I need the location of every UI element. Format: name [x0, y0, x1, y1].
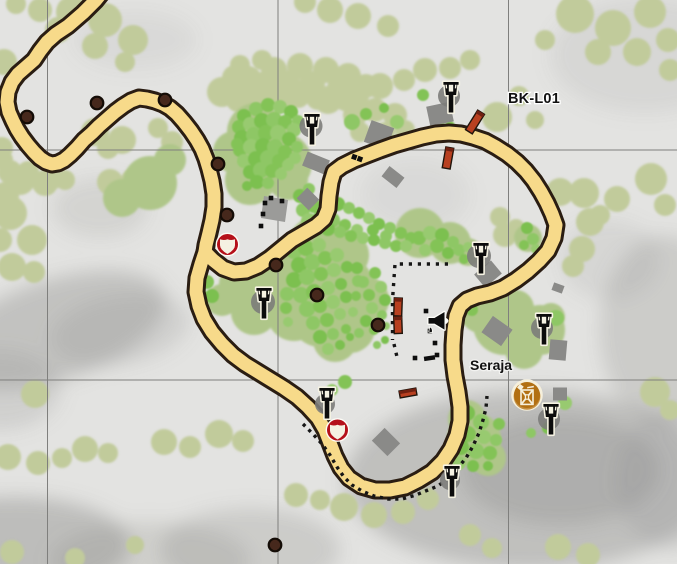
svg-text:BK-L01: BK-L01: [508, 91, 560, 107]
svg-text:Seraja: Seraja: [470, 357, 512, 373]
